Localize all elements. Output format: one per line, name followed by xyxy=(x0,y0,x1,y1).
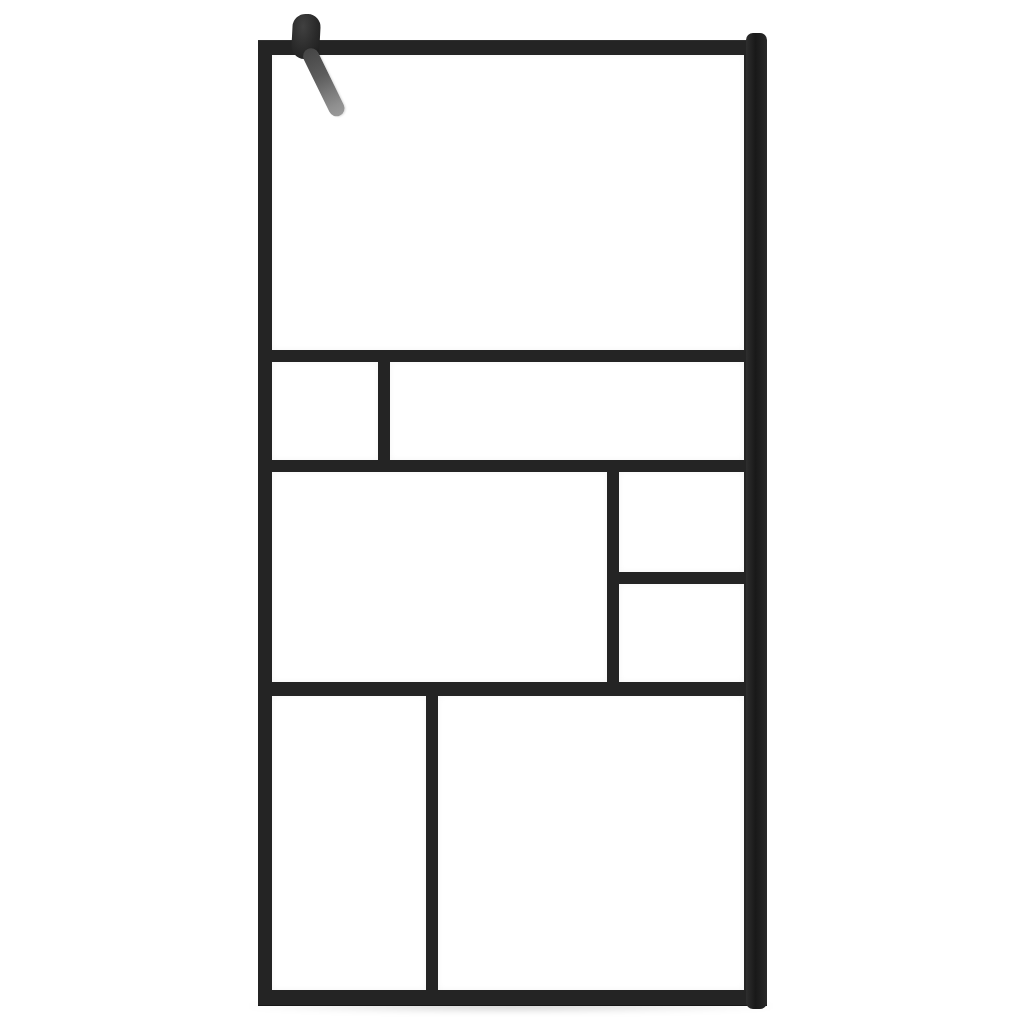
wall-mount-profile xyxy=(746,33,767,1009)
glass-pane-row3-right-upper xyxy=(619,472,744,572)
glass-pane-top xyxy=(272,55,744,350)
glass-pane-row2-left xyxy=(272,362,378,460)
glass-pane-row3-right-lower xyxy=(619,584,744,682)
glass-pane-row2-right xyxy=(390,362,744,460)
glass-pane-row4-left xyxy=(272,696,426,990)
glass-pane-row4-right xyxy=(438,696,744,990)
shower-screen-frame xyxy=(258,40,767,1006)
product-photo xyxy=(0,0,1024,1024)
glass-pane-row3-left xyxy=(272,472,607,682)
